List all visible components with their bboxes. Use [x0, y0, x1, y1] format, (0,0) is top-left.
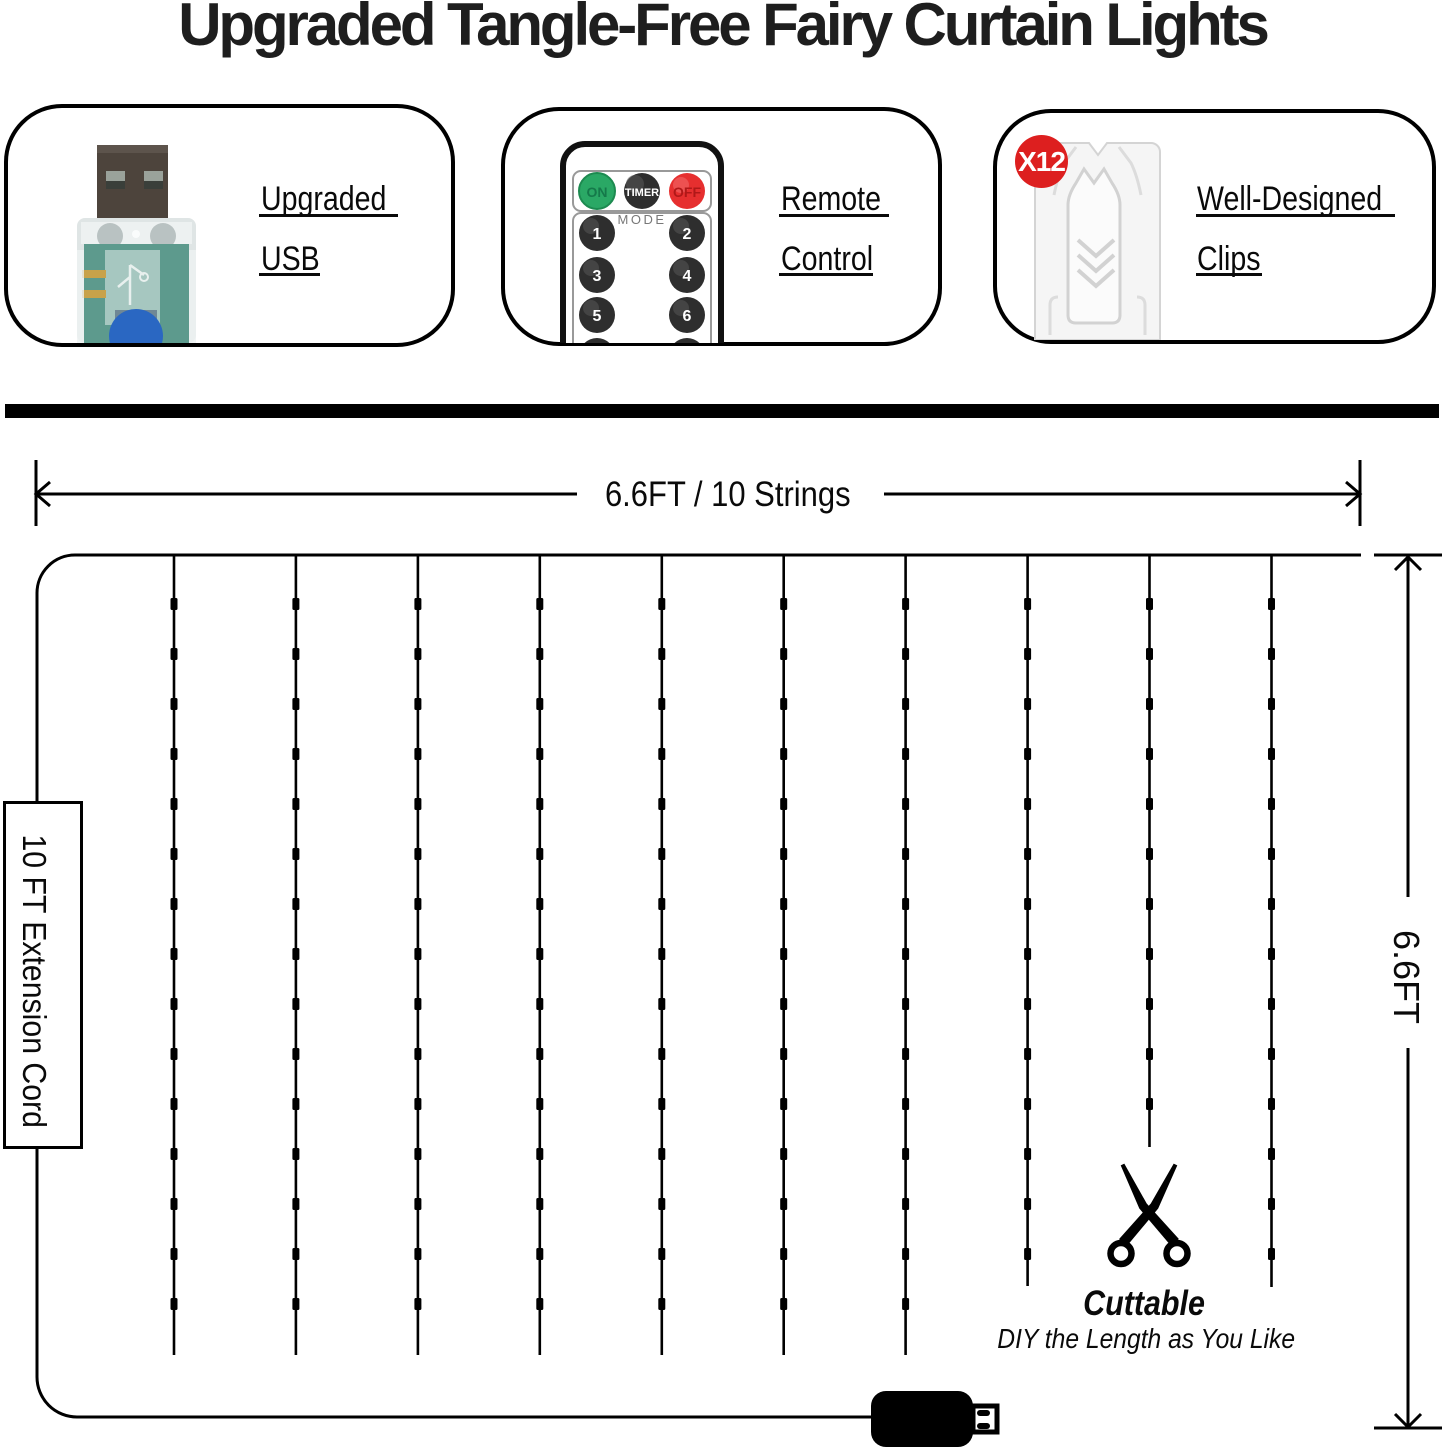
svg-text:6: 6: [683, 308, 692, 325]
svg-text:4: 4: [683, 268, 692, 285]
svg-text:5: 5: [593, 308, 602, 325]
svg-text:TIMER: TIMER: [625, 187, 659, 199]
svg-text:2: 2: [683, 226, 692, 243]
svg-text:3: 3: [593, 268, 602, 285]
svg-text:1: 1: [593, 226, 602, 243]
svg-text:MODE: MODE: [618, 212, 667, 227]
svg-text:OFF: OFF: [673, 184, 701, 200]
svg-text:ON: ON: [587, 184, 608, 200]
